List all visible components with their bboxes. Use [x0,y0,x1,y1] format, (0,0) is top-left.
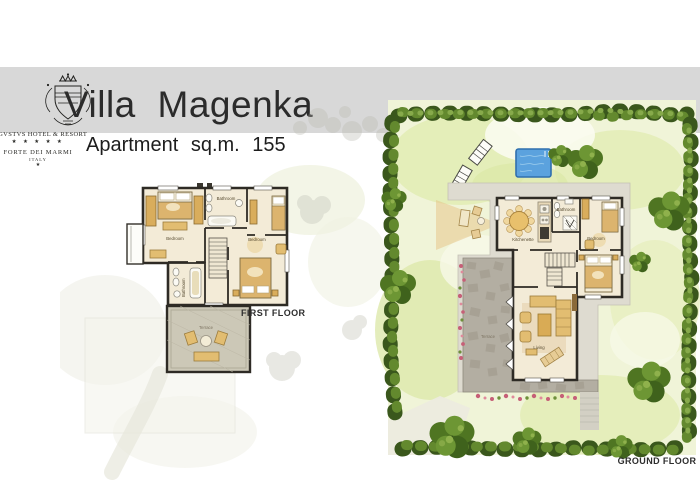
double-bed [233,258,278,298]
double-bed [579,255,618,292]
stairs [209,238,227,278]
terrace-first-floor: Terrace [167,306,250,372]
balcony-bay [127,224,143,264]
terrace-ground-label: Terrace [481,334,496,339]
double-bed [158,192,192,219]
hotel-star-mark: ★ [36,162,40,168]
single-bed [602,202,618,232]
page-title: Villa Magenka [64,84,313,126]
kitchenette-label: Kitchenette [512,237,534,242]
dining-table [504,206,535,237]
bathroom-top-label: Bathroom [217,196,236,201]
terrace-label: Terrace [199,325,214,330]
pool [516,149,551,177]
hotel-name: AVGVSTVS HOTEL & RESORT [0,131,87,138]
hotel-stars: ★ ★ ★ ★ ★ [12,139,65,145]
ground-floor-label: GROUND FLOOR [618,456,697,466]
bathroom-ground-label: Bathroom [557,207,576,212]
bathroom-lower-label: Bathroom [181,278,186,297]
faint-band-sketches [293,106,390,142]
living-label: Living [533,345,545,350]
brochure-page: AVGVSTVS HOTEL & RESORT ★ ★ ★ ★ ★ FORTE … [0,0,700,500]
ground-floor-plan: Terrace [290,60,700,475]
garden-path [580,392,599,430]
bedroom-left-label: Bedroom [166,236,184,241]
bedroom-ground-label: Bedroom [587,236,605,241]
bedroom-right-label: Bedroom [248,237,266,242]
